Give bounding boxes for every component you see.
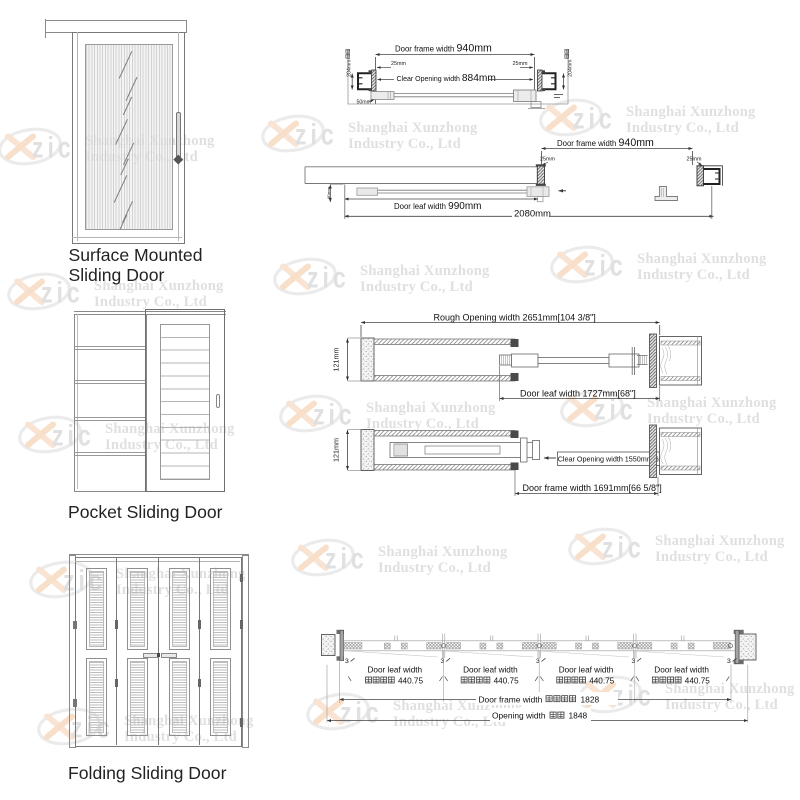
svg-text:204mm: 204mm [346,60,352,77]
svg-text:121mm: 121mm [332,438,341,462]
svg-text:440.75: 440.75 [589,676,614,685]
svg-text:440.75: 440.75 [398,676,423,685]
svg-text:440.75: 440.75 [494,676,519,685]
svg-text:Door frame width 1691mm[66 5/8: Door frame width 1691mm[66 5/8"] [523,483,662,493]
svg-text:3: 3 [345,658,349,665]
svg-text:Door leaf width: Door leaf width [654,666,709,675]
svg-text:Clear Opening width 884mm: Clear Opening width 884mm [397,73,496,84]
svg-text:Door frame width: Door frame width [479,694,543,704]
svg-text:440.75: 440.75 [685,676,710,685]
svg-text:Door frame width 940mm: Door frame width 940mm [557,137,654,149]
svg-text:121mm: 121mm [332,348,341,372]
svg-text:Opening width: Opening width [492,711,546,721]
svg-text:1848: 1848 [569,711,588,721]
svg-text:Door frame width 940mm: Door frame width 940mm [395,43,492,55]
svg-text:25mm: 25mm [687,157,702,163]
svg-text:2080mm: 2080mm [514,209,551,220]
svg-text:3: 3 [441,658,445,665]
svg-text:3: 3 [727,658,731,665]
svg-text:Rough Opening width 2651mm[104: Rough Opening width 2651mm[104 3/8"] [434,312,596,322]
svg-text:40mm: 40mm [326,186,331,199]
svg-text:25mm: 25mm [540,157,555,163]
svg-text:Door leaf width: Door leaf width [559,666,614,675]
svg-text:Door leaf width: Door leaf width [367,666,422,675]
svg-text:Door leaf width: Door leaf width [463,666,518,675]
svg-text:204mm: 204mm [567,60,573,77]
svg-text:Door leaf width 990mm: Door leaf width 990mm [394,201,482,212]
svg-text:50mm: 50mm [357,100,371,106]
svg-text:Door leaf width 1727mm[68"]: Door leaf width 1727mm[68"] [520,388,636,398]
svg-text:25mm: 25mm [513,61,528,67]
svg-text:25mm: 25mm [391,61,406,67]
svg-text:1828: 1828 [581,694,600,704]
